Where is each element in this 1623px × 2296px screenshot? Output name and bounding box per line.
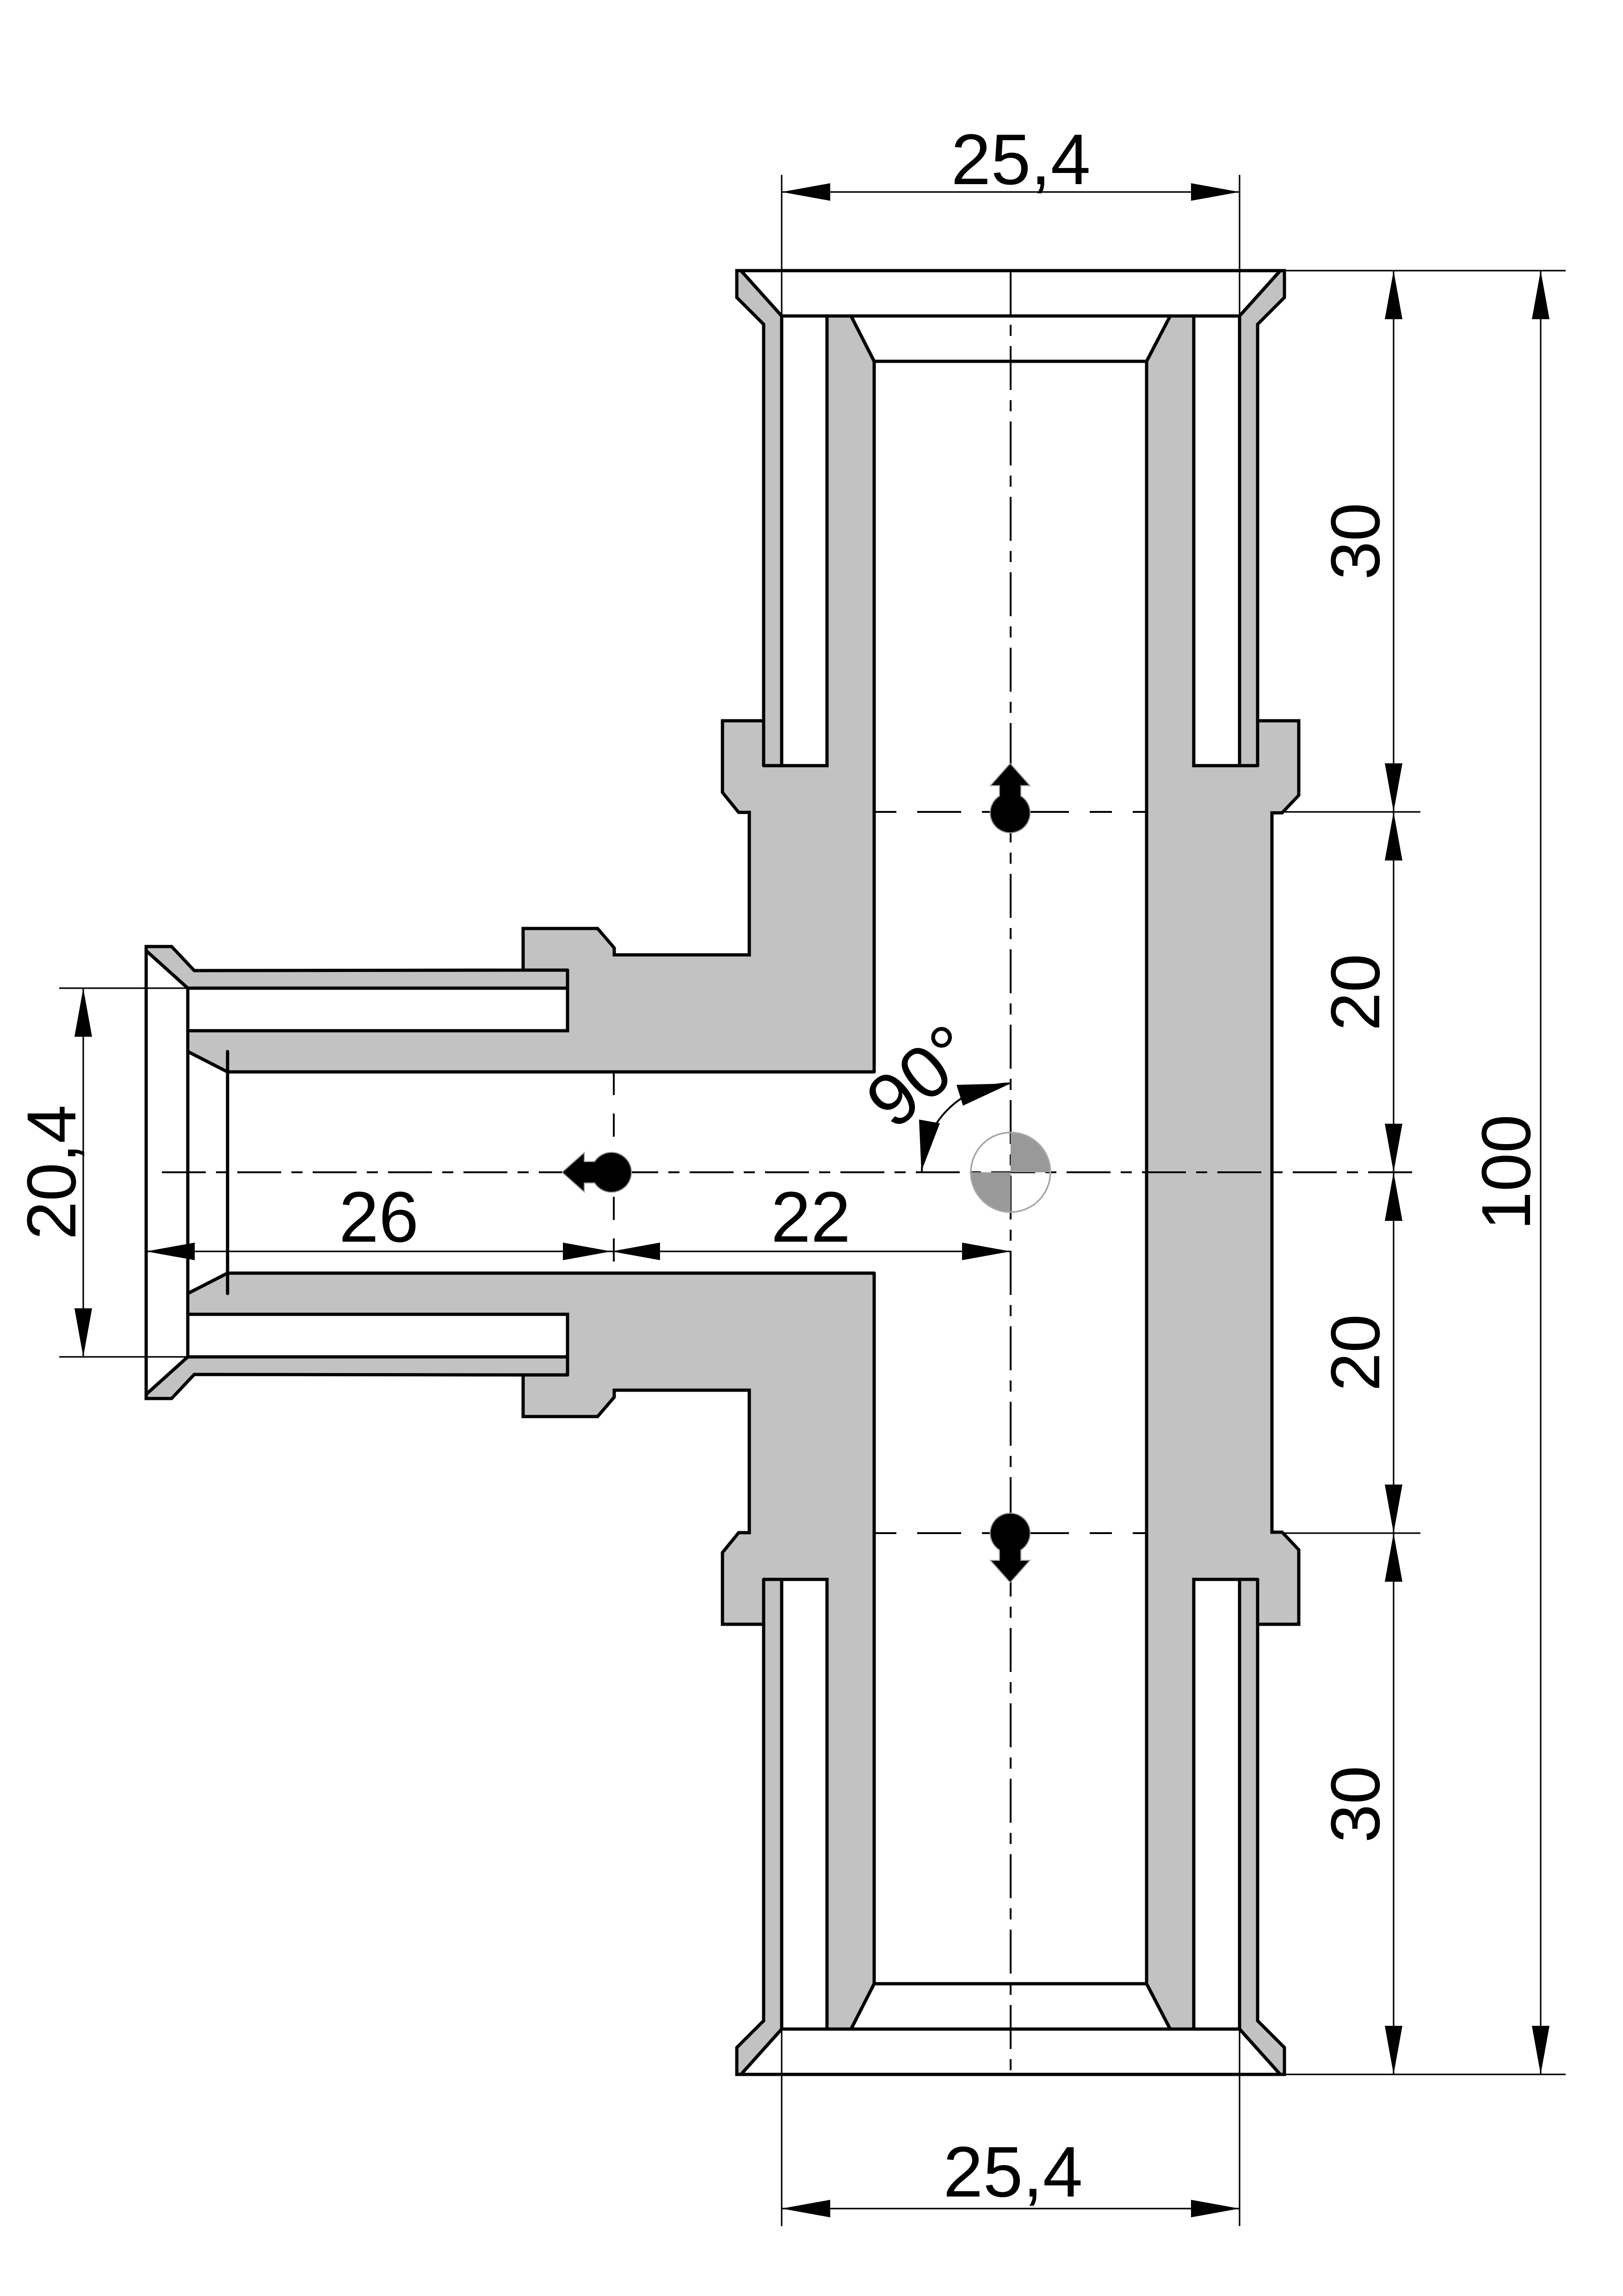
svg-text:20: 20	[1316, 954, 1394, 1031]
svg-text:26: 26	[339, 1177, 419, 1257]
svg-text:20: 20	[1316, 1314, 1394, 1392]
svg-text:20,4: 20,4	[12, 1105, 90, 1240]
svg-text:30: 30	[1316, 1766, 1394, 1843]
svg-text:30: 30	[1316, 503, 1394, 580]
svg-text:100: 100	[1467, 1114, 1545, 1230]
svg-text:22: 22	[771, 1177, 851, 1257]
svg-text:25,4: 25,4	[951, 119, 1091, 199]
svg-text:25,4: 25,4	[943, 2132, 1083, 2212]
